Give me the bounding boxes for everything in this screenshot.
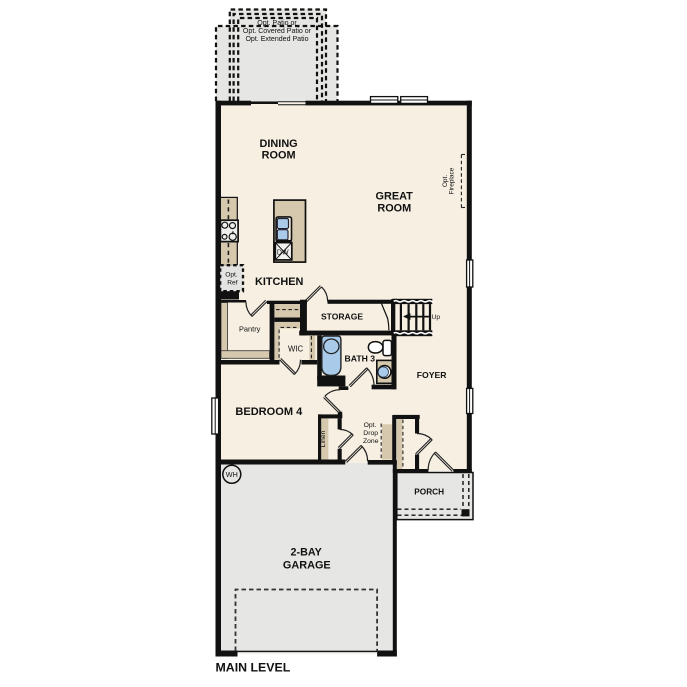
svg-text:Linen: Linen: [320, 430, 327, 447]
svg-text:PORCH: PORCH: [414, 488, 444, 497]
svg-text:Fireplace: Fireplace: [449, 167, 456, 194]
svg-text:Ref: Ref: [227, 280, 237, 287]
svg-text:Opt. Extended Patio: Opt. Extended Patio: [245, 36, 308, 43]
svg-text:MAIN LEVEL: MAIN LEVEL: [216, 661, 291, 675]
svg-text:STORAGE: STORAGE: [321, 312, 363, 322]
svg-text:DW: DW: [277, 250, 289, 257]
svg-text:BEDROOM 4: BEDROOM 4: [235, 406, 303, 418]
svg-text:Pantry: Pantry: [239, 324, 261, 333]
svg-text:Up: Up: [432, 314, 441, 321]
svg-text:GREAT: GREAT: [376, 190, 414, 202]
svg-text:2-BAY: 2-BAY: [291, 546, 322, 558]
svg-text:WH: WH: [226, 470, 238, 479]
svg-text:Drop: Drop: [363, 430, 378, 437]
svg-text:GARAGE: GARAGE: [283, 560, 331, 572]
svg-text:DINING: DINING: [260, 138, 298, 150]
svg-text:Opt.: Opt.: [364, 422, 377, 429]
svg-text:Opt. Patio or: Opt. Patio or: [257, 20, 297, 27]
svg-text:KITCHEN: KITCHEN: [255, 276, 304, 288]
svg-text:Zone: Zone: [363, 438, 379, 445]
svg-text:WIC: WIC: [288, 344, 304, 353]
svg-text:BATH 3: BATH 3: [345, 353, 376, 363]
svg-text:FOYER: FOYER: [417, 370, 447, 380]
svg-text:Opt.: Opt.: [225, 271, 238, 278]
svg-text:Opt. Covered Patio or: Opt. Covered Patio or: [243, 28, 312, 35]
svg-text:ROOM: ROOM: [262, 149, 296, 161]
svg-text:ROOM: ROOM: [377, 203, 411, 215]
